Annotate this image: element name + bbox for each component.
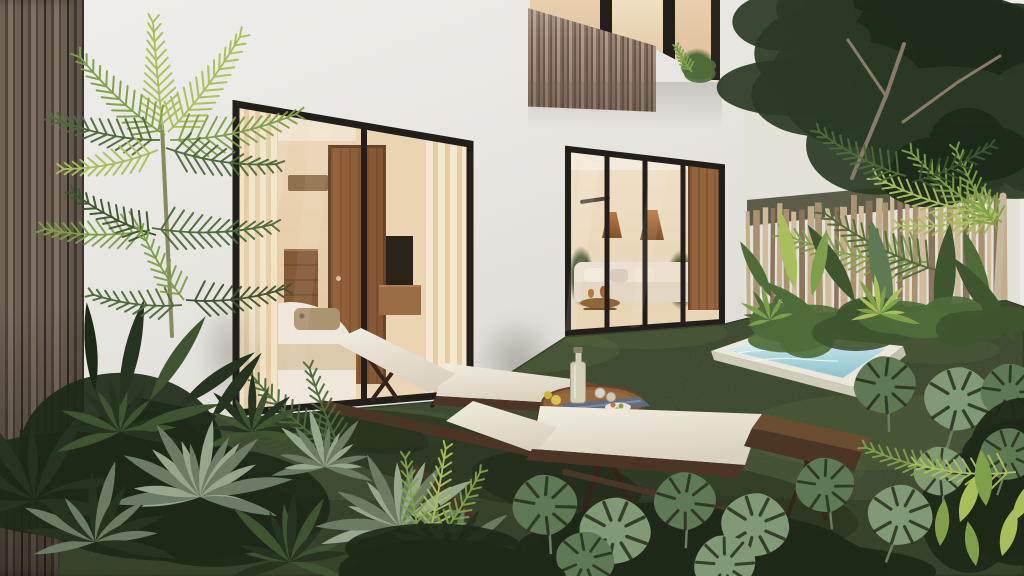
broad-leaf bbox=[779, 211, 797, 290]
palm-frond bbox=[135, 224, 187, 300]
broad-leaf bbox=[740, 241, 772, 298]
palm-frond bbox=[152, 208, 280, 250]
palm-frond bbox=[57, 138, 158, 175]
monstera-leaf bbox=[849, 351, 923, 437]
rosette-plant bbox=[271, 409, 372, 481]
palm-frond bbox=[186, 281, 292, 316]
tropical-plants-layer bbox=[0, 0, 1024, 576]
villa-backyard-scene bbox=[0, 0, 1024, 576]
